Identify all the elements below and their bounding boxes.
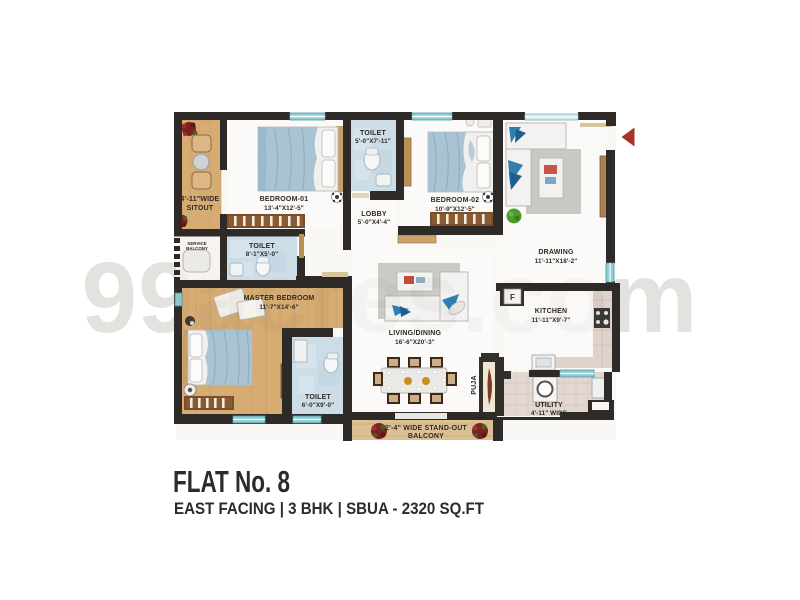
svg-text:5'-0"X7'-11": 5'-0"X7'-11" (355, 138, 391, 145)
svg-text:BEDROOM-02: BEDROOM-02 (431, 197, 480, 204)
svg-text:4'-11" WIDE: 4'-11" WIDE (531, 410, 567, 417)
svg-text:2'-4" WIDE STAND-OUT: 2'-4" WIDE STAND-OUT (385, 425, 467, 432)
svg-text:TOILET: TOILET (360, 130, 386, 137)
svg-text:5'-0"X4'-4": 5'-0"X4'-4" (358, 219, 390, 226)
svg-text:99acres.com: 99acres.com (81, 242, 698, 354)
svg-text:10'-9"X12'-5": 10'-9"X12'-5" (435, 206, 475, 213)
svg-text:FLAT No. 8: FLAT No. 8 (173, 464, 290, 499)
svg-text:4'-11"WIDE: 4'-11"WIDE (181, 196, 220, 203)
svg-text:PUJA: PUJA (471, 375, 478, 394)
svg-text:TOILET: TOILET (305, 394, 331, 401)
svg-text:6'-0"X9'-0": 6'-0"X9'-0" (302, 402, 334, 409)
svg-text:13'-4"X12'-5": 13'-4"X12'-5" (264, 205, 304, 212)
svg-text:EAST FACING | 3 BHK | SBUA - 2: EAST FACING | 3 BHK | SBUA - 2320 SQ.FT (174, 500, 484, 518)
svg-text:LOBBY: LOBBY (361, 211, 387, 218)
svg-text:BALCONY: BALCONY (408, 433, 444, 440)
svg-text:SITOUT: SITOUT (187, 205, 214, 212)
svg-text:UTILITY: UTILITY (535, 402, 563, 409)
svg-text:BEDROOM-01: BEDROOM-01 (260, 196, 309, 203)
